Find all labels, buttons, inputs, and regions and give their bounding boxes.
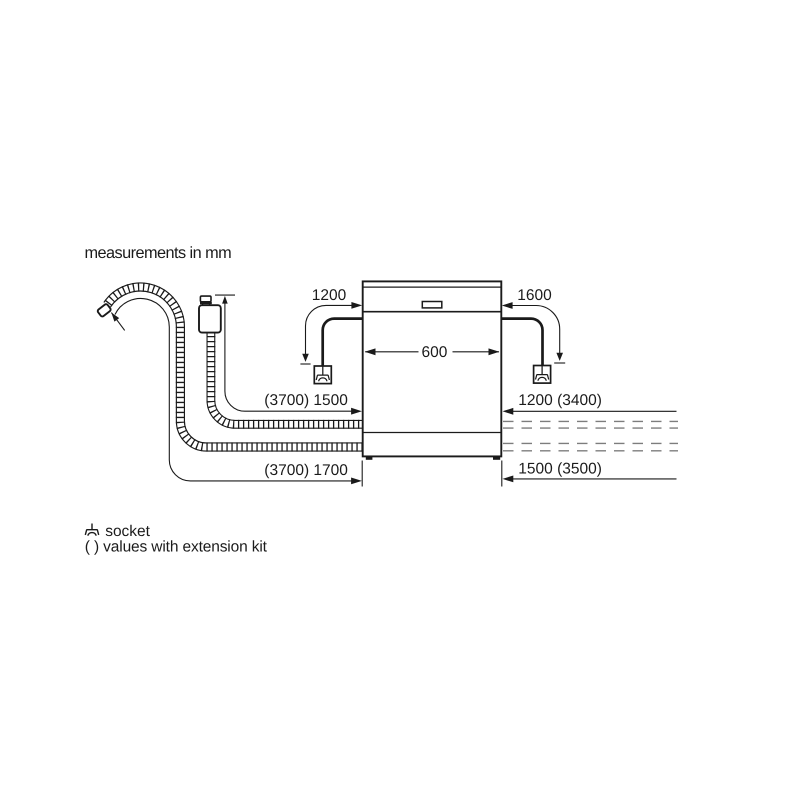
svg-text:1200: 1200 bbox=[312, 287, 347, 304]
svg-text:( ) values with extension kit: ( ) values with extension kit bbox=[85, 538, 268, 555]
svg-text:1500 (3500): 1500 (3500) bbox=[518, 460, 602, 477]
svg-text:600: 600 bbox=[422, 344, 448, 361]
svg-text:1200 (3400): 1200 (3400) bbox=[518, 392, 602, 409]
svg-text:(3700) 1500: (3700) 1500 bbox=[264, 392, 348, 409]
svg-text:(3700) 1700: (3700) 1700 bbox=[264, 462, 348, 479]
svg-text:1600: 1600 bbox=[517, 287, 552, 304]
svg-text:measurements in mm: measurements in mm bbox=[85, 244, 232, 262]
